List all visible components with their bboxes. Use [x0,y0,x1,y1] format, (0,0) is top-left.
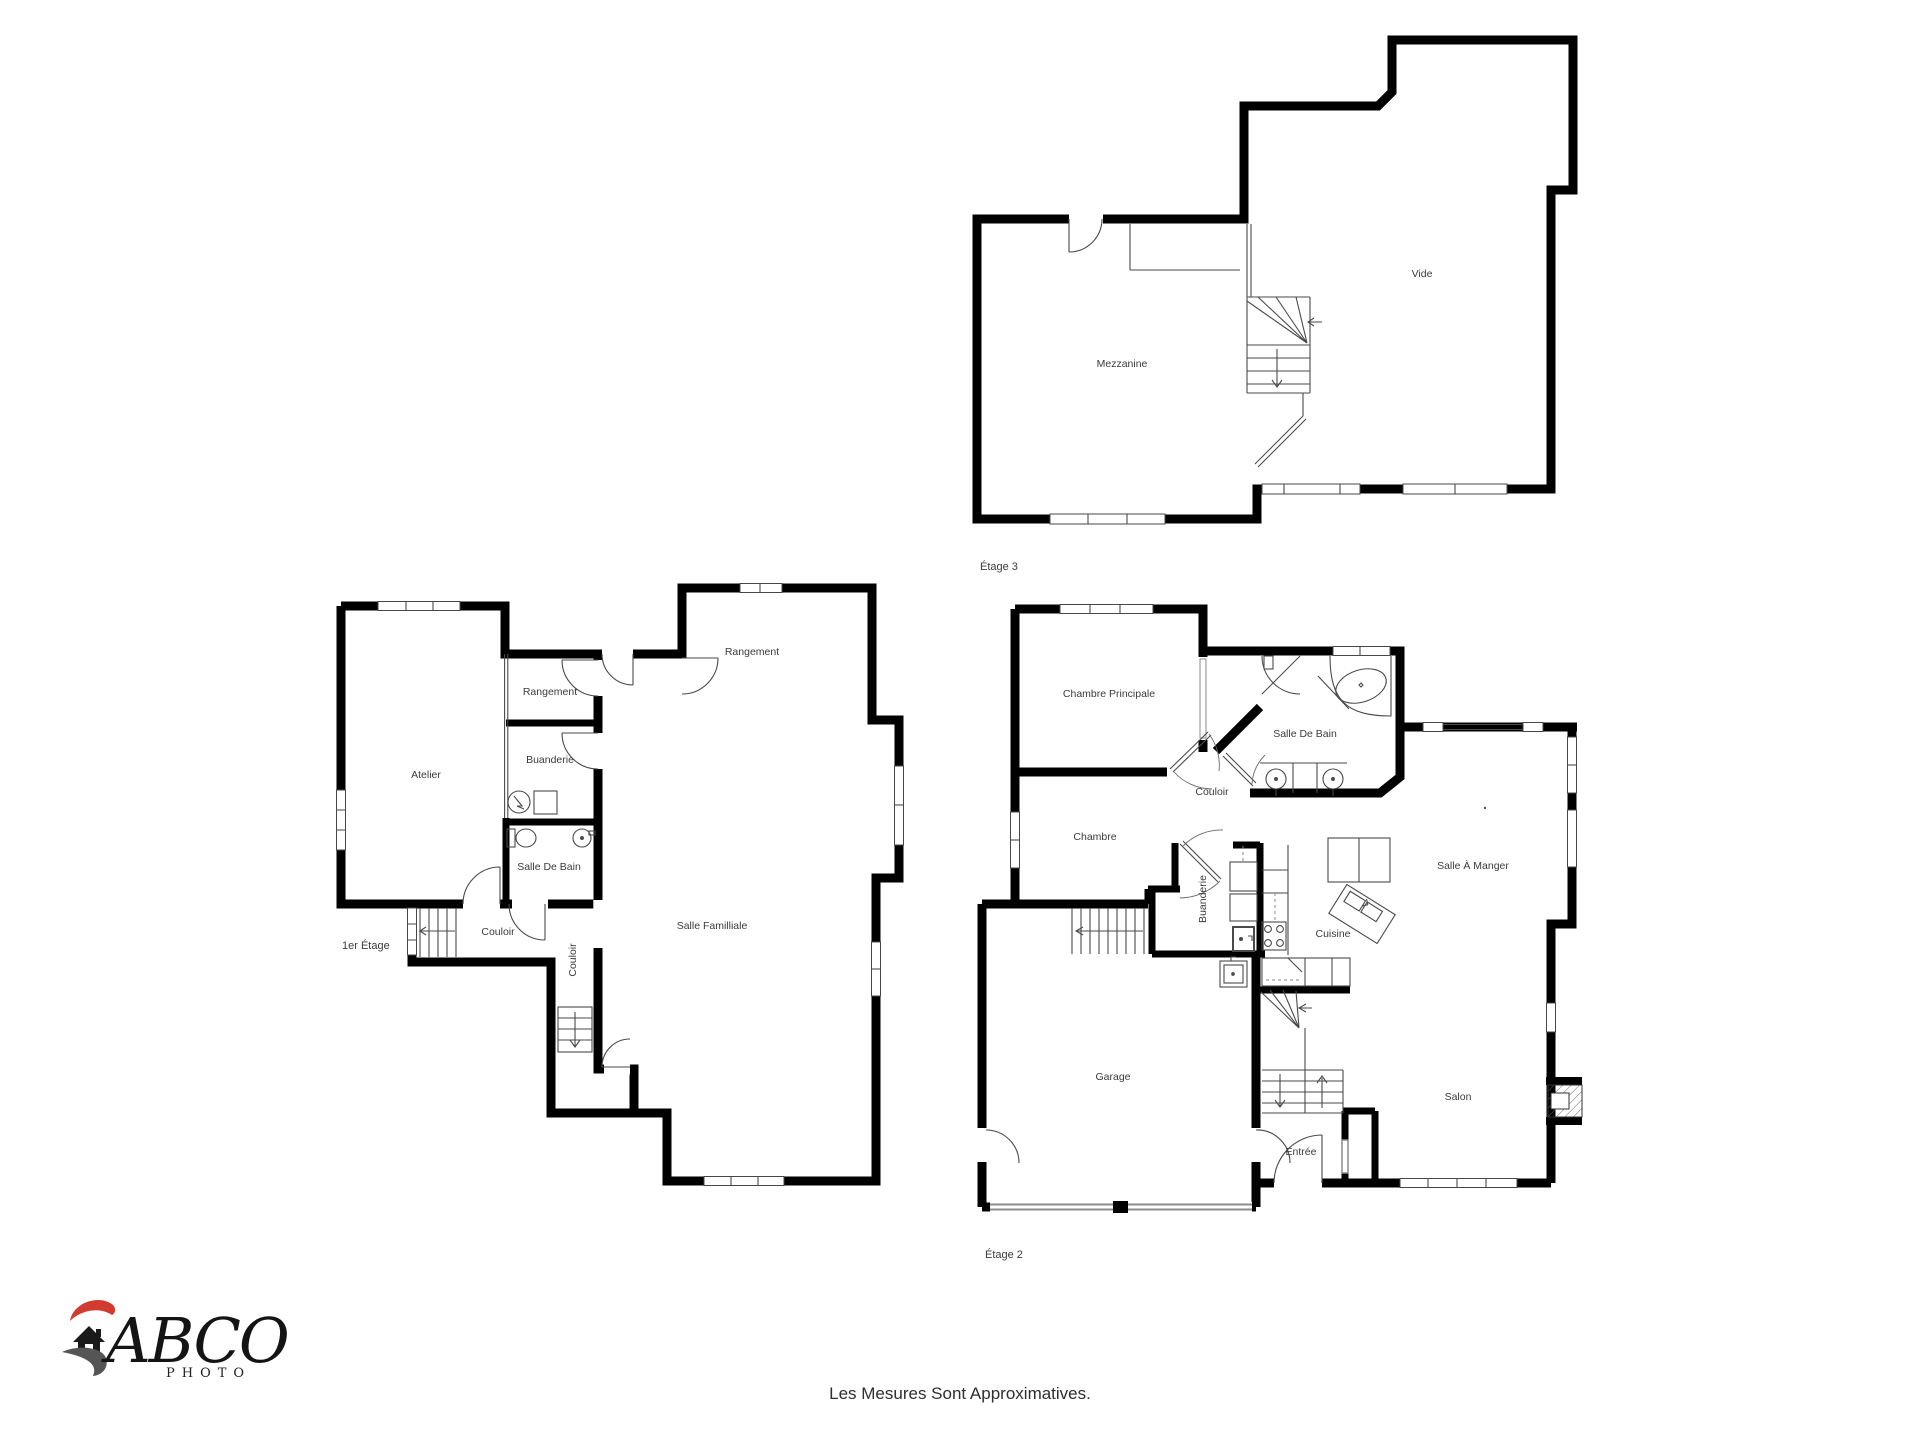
room-label-chambre-principale: Chambre Principale [1063,688,1155,700]
window [872,942,881,996]
half-wall [505,654,508,818]
stairs-icon [420,908,456,957]
disclaimer-caption: Les Mesures Sont Approximatives. [829,1384,1091,1403]
wall [982,904,1256,1207]
window [1568,737,1577,793]
room-label-chambre: Chambre [1073,831,1116,843]
bathtub-icon [1318,656,1391,716]
utility-sink-icon [1220,957,1247,987]
window [408,908,417,955]
room-label-vide: Vide [1412,268,1433,280]
door-salle-de-bain [1223,753,1265,786]
floorplan-etage2: Chambre Principale Salle De Bain Couloir… [978,605,1583,1262]
window [1400,1179,1517,1188]
window [1547,1003,1556,1032]
logo-gray-swoosh-icon [62,1348,107,1376]
room-label-salle-familliale: Salle Familliale [677,920,748,932]
door-chambre-principale [1170,732,1219,789]
floor-label-etage3: Étage 3 [980,560,1018,573]
shower-icon [1262,656,1300,694]
stairs-icon [558,1007,592,1052]
wall [341,588,899,1181]
floorplan-etage3: Mezzanine Vide Étage 3 [977,40,1573,573]
window [1262,484,1360,494]
room-label-couloir-vertical: Couloir [567,943,579,977]
dryer-icon [534,791,557,814]
room-label-garage: Garage [1095,1071,1130,1083]
room-label-salon: Salon [1445,1091,1472,1103]
window [1568,810,1577,867]
window [1050,514,1165,524]
window [1060,605,1153,614]
room-label-salle-a-manger: Salle À Manger [1437,859,1509,872]
room-label-buanderie2: Buanderie [1197,875,1209,923]
door-arcs [463,654,718,1067]
room-label-entree: Entrée [1286,1146,1317,1158]
window [1333,647,1390,656]
fireplace-chimney-icon [1546,1077,1582,1125]
room-label-cuisine: Cuisine [1315,928,1350,940]
window [895,766,904,845]
wall [977,40,1573,519]
window [704,1177,784,1186]
kitchen-counter-icon [1262,845,1350,986]
room-label-rangement-small: Rangement [523,686,577,698]
room-label-couloir: Couloir [481,926,515,938]
window [1011,812,1020,868]
room-label-salle-de-bain2: Salle De Bain [1273,728,1337,740]
room-label-salle-de-bain: Salle De Bain [517,861,581,873]
stairs-icon [1072,908,1144,954]
room-label-rangement-big: Rangement [725,646,779,658]
door-arcs [986,1130,1322,1183]
room-label-couloir2: Couloir [1195,786,1229,798]
floor-label-etage2: Étage 2 [985,1248,1023,1261]
window [1403,484,1507,494]
windows-1er [337,584,904,1186]
pocket-door [1198,657,1208,740]
window [740,584,782,593]
floor-label-1er-etage: 1er Étage [342,939,390,952]
room-label-buanderie: Buanderie [526,754,574,766]
windows-etage3 [1050,484,1507,524]
room-label-mezzanine: Mezzanine [1097,358,1148,370]
window [378,602,460,611]
sink-icon [573,829,595,847]
plan-dot [1484,807,1486,809]
window [337,790,346,850]
garage-door [990,1201,1252,1213]
room-label-atelier: Atelier [411,769,441,781]
laundry-appliances-icon [1230,846,1257,951]
door-mezzanine [1069,214,1103,253]
stairs-winder-icon [1247,297,1322,467]
stairs-winder-icon [1261,990,1343,1113]
logo-subtitle-text: PHOTO [166,1366,251,1381]
floorplan-canvas: Mezzanine Vide Étage 3 [0,0,1920,1440]
wall-interior [1148,843,1350,990]
logo-abco: ABCO PHOTO [62,1300,289,1381]
table-icon [1328,838,1390,882]
toilet-icon [507,829,536,847]
wall-diagonal [1216,707,1260,751]
floorplan-1er-etage: Atelier Rangement Buanderie Salle De Bai… [337,584,904,1186]
landing-lines [1130,224,1251,393]
washer-icon [508,791,530,813]
door-slab [1342,1140,1348,1173]
